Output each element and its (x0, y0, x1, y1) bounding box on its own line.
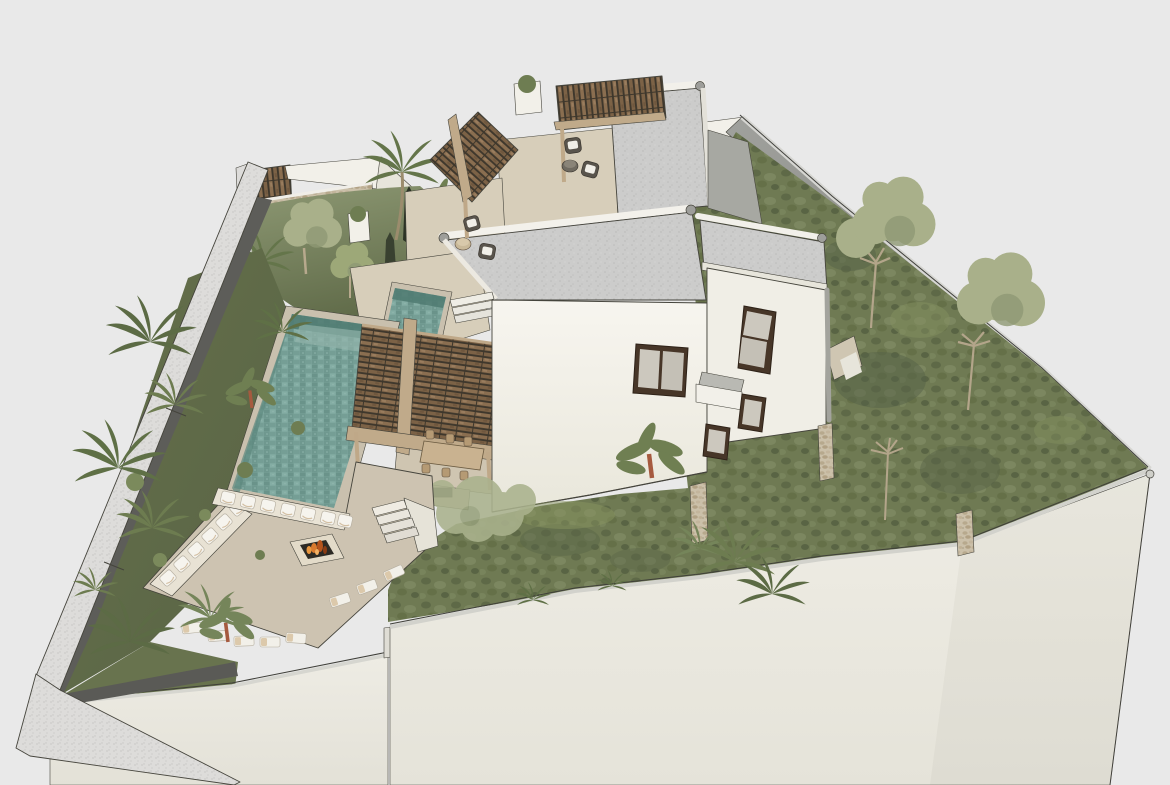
dining-chair (422, 464, 430, 473)
wicker-armchair (478, 243, 496, 261)
lawn-shade (920, 446, 1000, 494)
lawn-light (1034, 416, 1086, 444)
pergola-post (562, 126, 564, 182)
bench-cushion (260, 499, 276, 514)
dining-chair (426, 430, 434, 439)
bench-cushion (240, 495, 256, 510)
shrub (153, 553, 167, 567)
wicker-armchair (564, 137, 582, 154)
shrub (291, 421, 305, 435)
sun-lounger (260, 637, 280, 647)
villa-3d-render: Aerial 3D architectural rendering of a m… (0, 0, 1170, 785)
dining-chair (446, 434, 454, 443)
bench-cushion (280, 503, 296, 518)
planter-shrub (518, 75, 536, 93)
window-glass (743, 311, 772, 340)
window-glass (707, 429, 726, 454)
window-glass (661, 351, 684, 391)
window-glass (742, 399, 762, 427)
render-viewport: Aerial 3D architectural rendering of a m… (0, 0, 1170, 785)
sun-lounger (286, 632, 307, 643)
window-glass (739, 337, 767, 368)
roof-terrace-floor (497, 128, 618, 226)
shrub (255, 550, 265, 560)
shrub (126, 473, 144, 491)
lawn-shade (610, 548, 670, 572)
stone-strip-wall (818, 423, 834, 481)
shrub (237, 462, 253, 478)
bench-cushion (300, 507, 316, 522)
lawn-light (890, 302, 950, 338)
parapet-pole (686, 205, 696, 215)
stone-strip-wall (956, 510, 974, 556)
corner-pole (827, 290, 829, 420)
wall-corner-cap (1146, 470, 1154, 478)
bench-cushion (337, 514, 353, 529)
shrub (199, 509, 211, 521)
bench-cushion (220, 491, 236, 506)
dining-chair (464, 437, 472, 446)
bench-cushion (320, 511, 336, 526)
window-glass (638, 349, 660, 389)
planter-shrub (350, 206, 366, 222)
side-table-top (457, 238, 469, 246)
parapet-pole (818, 234, 827, 243)
dining-chair (442, 468, 450, 477)
pergola-post (465, 196, 467, 238)
side-table-top (564, 160, 576, 168)
